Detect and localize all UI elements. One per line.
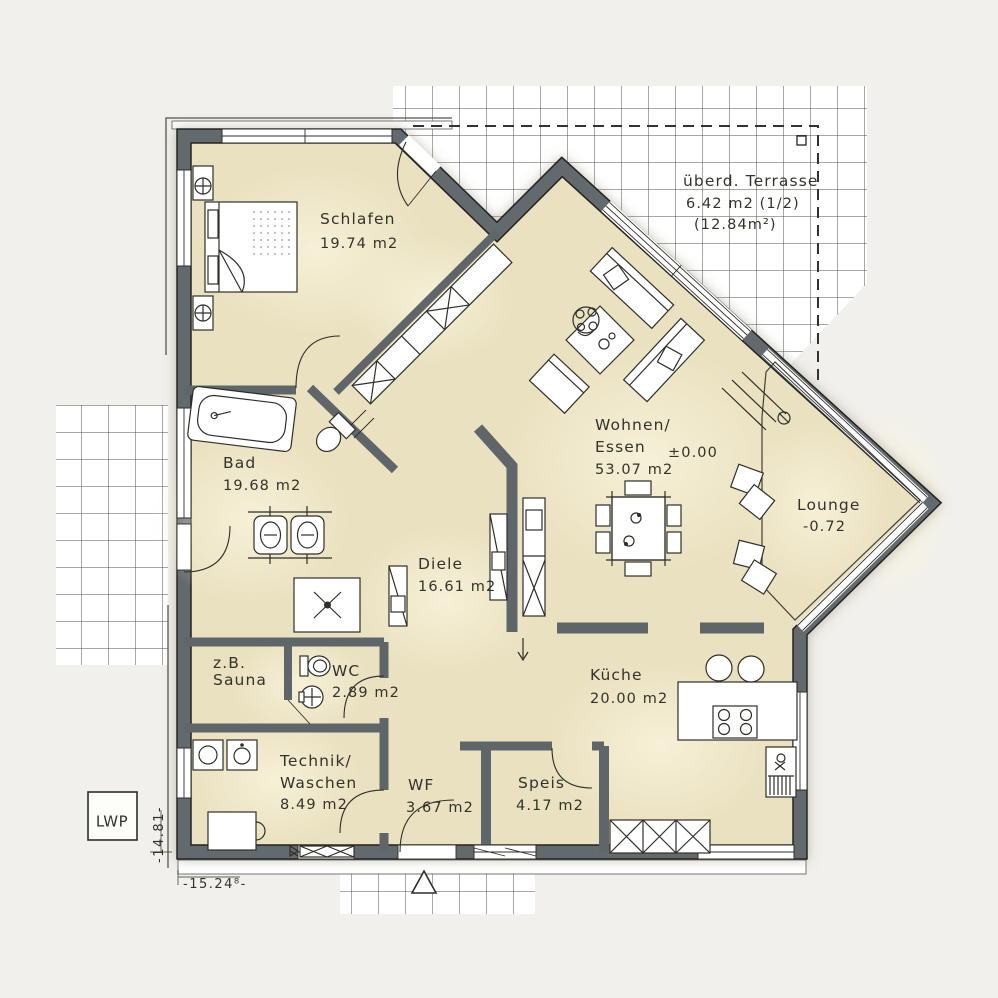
label-wf-area: 3.67 m2 <box>406 800 474 816</box>
entrance-paving <box>340 874 535 914</box>
label-technik-area: 8.49 m2 <box>280 797 348 813</box>
kitchen-cabinets <box>610 820 710 853</box>
label-wohnen-area: 53.07 m2 <box>595 462 673 478</box>
label-wc: WC <box>332 662 360 680</box>
label-schlafen: Schlafen <box>320 210 396 228</box>
floorplan-page: Schlafen 19.74 m2 überd. Terrasse 6.42 m… <box>0 0 998 998</box>
bed <box>205 202 297 292</box>
label-lounge-level: -0.72 <box>803 519 846 535</box>
label-diele: Diele <box>418 555 463 573</box>
label-kueche: Küche <box>590 666 643 684</box>
label-technik: Technik/ <box>279 752 352 770</box>
label-sauna: Sauna <box>213 671 267 689</box>
label-bad-area: 19.68 m2 <box>223 478 301 494</box>
label-sauna-zb: z.B. <box>213 654 246 672</box>
terrace-left <box>56 405 168 665</box>
label-speis-area: 4.17 m2 <box>516 798 584 814</box>
label-terrasse-area: 6.42 m2 (1/2) <box>686 196 800 212</box>
label-speis: Speis <box>518 774 565 792</box>
kitchen-sink-counter <box>766 747 796 797</box>
kitchen-island <box>678 682 797 740</box>
label-wc-area: 2.89 m2 <box>332 685 400 701</box>
label-wohnen-level: ±0.00 <box>668 445 718 461</box>
dimension-width: -15.24⁸- <box>183 877 247 892</box>
label-essen: Essen <box>595 438 646 456</box>
label-lwp: LWP <box>96 813 128 831</box>
window-sill-top <box>172 121 452 129</box>
label-terrasse: überd. Terrasse <box>683 172 819 190</box>
label-waschen: Waschen <box>280 774 357 792</box>
toilet-wc <box>300 656 330 676</box>
sill-cabinet <box>290 846 354 857</box>
floorplan-drawing: Schlafen 19.74 m2 überd. Terrasse 6.42 m… <box>0 0 998 998</box>
label-terrasse-area2: (12.84m²) <box>694 217 777 233</box>
label-wohnen: Wohnen/ <box>595 416 671 434</box>
shower <box>294 578 360 632</box>
dimension-height: -14.81- <box>152 806 167 863</box>
work-table <box>208 812 265 850</box>
label-wf: WF <box>408 776 434 794</box>
label-lounge: Lounge <box>797 496 860 514</box>
label-bad: Bad <box>223 454 256 472</box>
label-schlafen-area: 19.74 m2 <box>320 236 398 252</box>
exterior-plinth-band <box>178 860 806 874</box>
label-diele-area: 16.61 m2 <box>418 579 496 595</box>
label-kueche-area: 20.00 m2 <box>590 691 668 707</box>
